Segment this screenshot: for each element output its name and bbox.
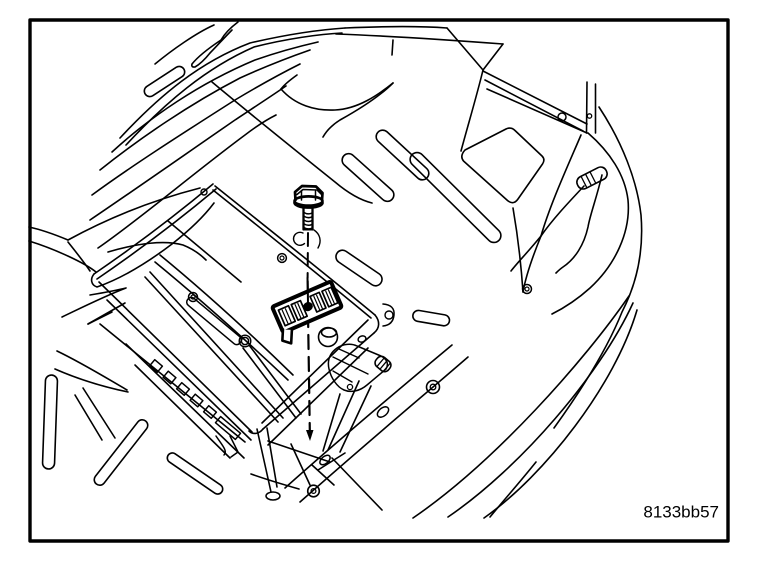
svg-text:8133bb57: 8133bb57	[643, 503, 719, 522]
